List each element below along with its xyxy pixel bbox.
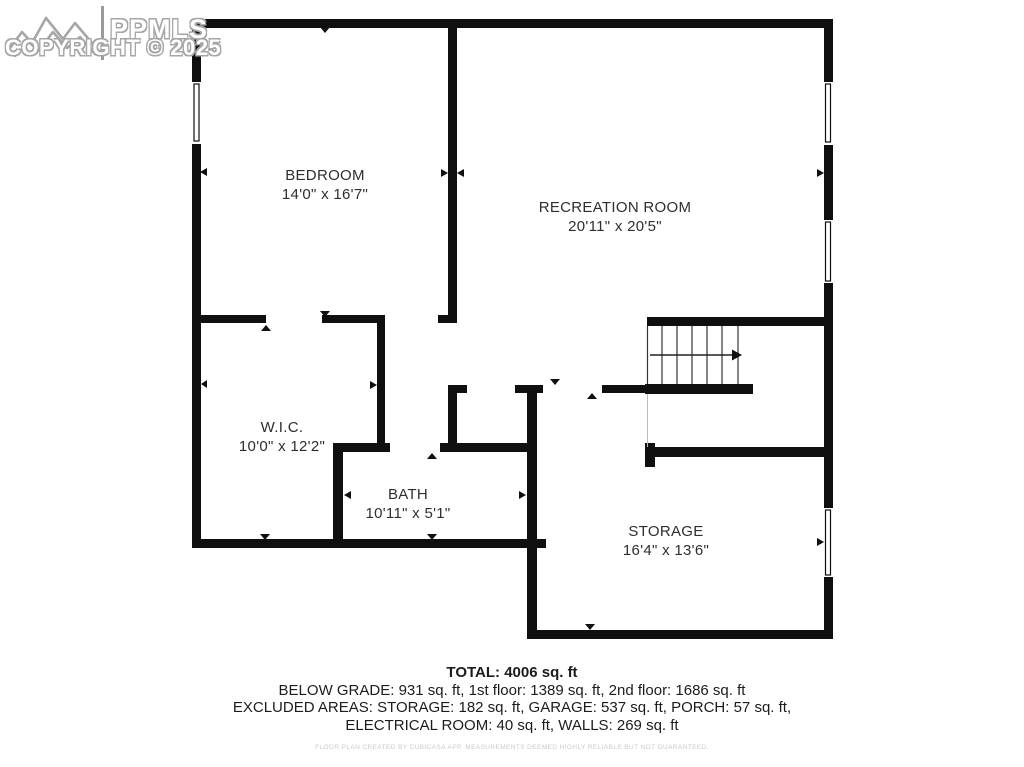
wall-bedroom-south-b [322, 315, 385, 323]
room-label-recreation: RECREATION ROOM 20'11" x 20'5" [539, 198, 692, 236]
wall-hall-north-b [515, 385, 543, 393]
marker-bedroom-right-a-icon [441, 169, 448, 177]
wall-bedroom-south-a [200, 315, 266, 323]
windows [194, 84, 831, 575]
room-dimensions: 10'0" x 12'2" [239, 437, 325, 456]
wall-bath-north-a [333, 443, 390, 452]
room-name: BEDROOM [282, 166, 368, 185]
summary-excluded-2: ELECTRICAL ROOM: 40 sq. ft, WALLS: 269 s… [0, 717, 1024, 735]
room-name: BATH [365, 485, 450, 504]
floorplan-page: PPMLS COPYRIGHT © 2025 BEDROOM 14'0" x 1… [0, 0, 1024, 767]
summary-excluded-1: EXCLUDED AREAS: STORAGE: 182 sq. ft, GAR… [0, 699, 1024, 717]
room-dimensions: 14'0" x 16'7" [282, 185, 368, 204]
wall-storage-north [645, 447, 833, 457]
wall-stair-south [645, 384, 753, 394]
wall-bottom-left [192, 539, 546, 548]
wall-top [192, 19, 833, 28]
wall-bedroom-right [448, 28, 457, 323]
window-left-icon [194, 84, 199, 141]
marker-left-wall-wic-icon [201, 380, 207, 388]
room-label-storage: STORAGE 16'4" x 13'6" [623, 522, 709, 560]
summary-floors: BELOW GRADE: 931 sq. ft, 1st floor: 1389… [0, 682, 1024, 700]
room-name: W.I.C. [239, 418, 325, 437]
marker-wic-door-icon [261, 325, 271, 331]
wall-left-lower [192, 144, 201, 548]
wall-storage-bottom [527, 630, 833, 639]
wall-right-2 [824, 145, 833, 220]
marker-hall-opening-top-icon [550, 379, 560, 385]
logo-copyright-text: COPYRIGHT © 2025 [5, 35, 221, 61]
area-summary: TOTAL: 4006 sq. ft BELOW GRADE: 931 sq. … [0, 664, 1024, 734]
room-name: STORAGE [623, 522, 709, 541]
marker-storage-bottom-icon [585, 624, 595, 630]
marker-hall-opening-bottom-icon [587, 393, 597, 399]
marker-bath-left-icon [344, 491, 351, 499]
stairs-direction-arrow-icon [732, 350, 742, 361]
interior-walls [200, 28, 833, 548]
outer-walls [192, 19, 833, 639]
marker-right-wall-rec-icon [817, 169, 824, 177]
window-right-mid-icon [826, 222, 831, 281]
disclaimer-text: FLOOR PLAN CREATED BY CUBICASA APP. MEAS… [0, 744, 1024, 751]
marker-storage-right-icon [817, 538, 824, 546]
wall-storage-left [527, 390, 537, 639]
wall-vestibule-west [448, 385, 457, 450]
wall-stair-north [647, 317, 833, 326]
room-label-bath: BATH 10'11" x 5'1" [365, 485, 450, 523]
marker-left-wall-bedroom-icon [200, 168, 207, 176]
wall-wic-right [377, 315, 385, 450]
room-dimensions: 16'4" x 13'6" [623, 541, 709, 560]
marker-wic-right-icon [370, 381, 377, 389]
floorplan-drawing [0, 0, 1024, 767]
room-name: RECREATION ROOM [539, 198, 692, 217]
watermark-logo: PPMLS COPYRIGHT © 2025 [0, 0, 230, 70]
room-label-bedroom: BEDROOM 14'0" x 16'7" [282, 166, 368, 204]
wall-hall-north-a [448, 385, 467, 393]
window-right-top-icon [826, 84, 831, 142]
marker-top-wall-icon [320, 27, 330, 33]
wall-hall-north-c [602, 385, 647, 393]
wall-storage-north-notch [645, 443, 655, 467]
wall-right-4 [824, 577, 833, 639]
marker-bath-right-icon [519, 491, 526, 499]
wall-bath-left [333, 443, 343, 548]
room-dimensions: 20'11" x 20'5" [539, 217, 692, 236]
room-dimensions: 10'11" x 5'1" [365, 504, 450, 523]
wall-right-3 [824, 283, 833, 508]
wall-bedroom-south-cap [438, 315, 457, 323]
marker-bedroom-right-b-icon [457, 169, 464, 177]
summary-total: TOTAL: 4006 sq. ft [0, 664, 1024, 682]
room-label-wic: W.I.C. 10'0" x 12'2" [239, 418, 325, 456]
wall-right-1 [824, 19, 833, 82]
marker-bath-door-icon [427, 453, 437, 459]
window-storage-icon [826, 510, 831, 575]
